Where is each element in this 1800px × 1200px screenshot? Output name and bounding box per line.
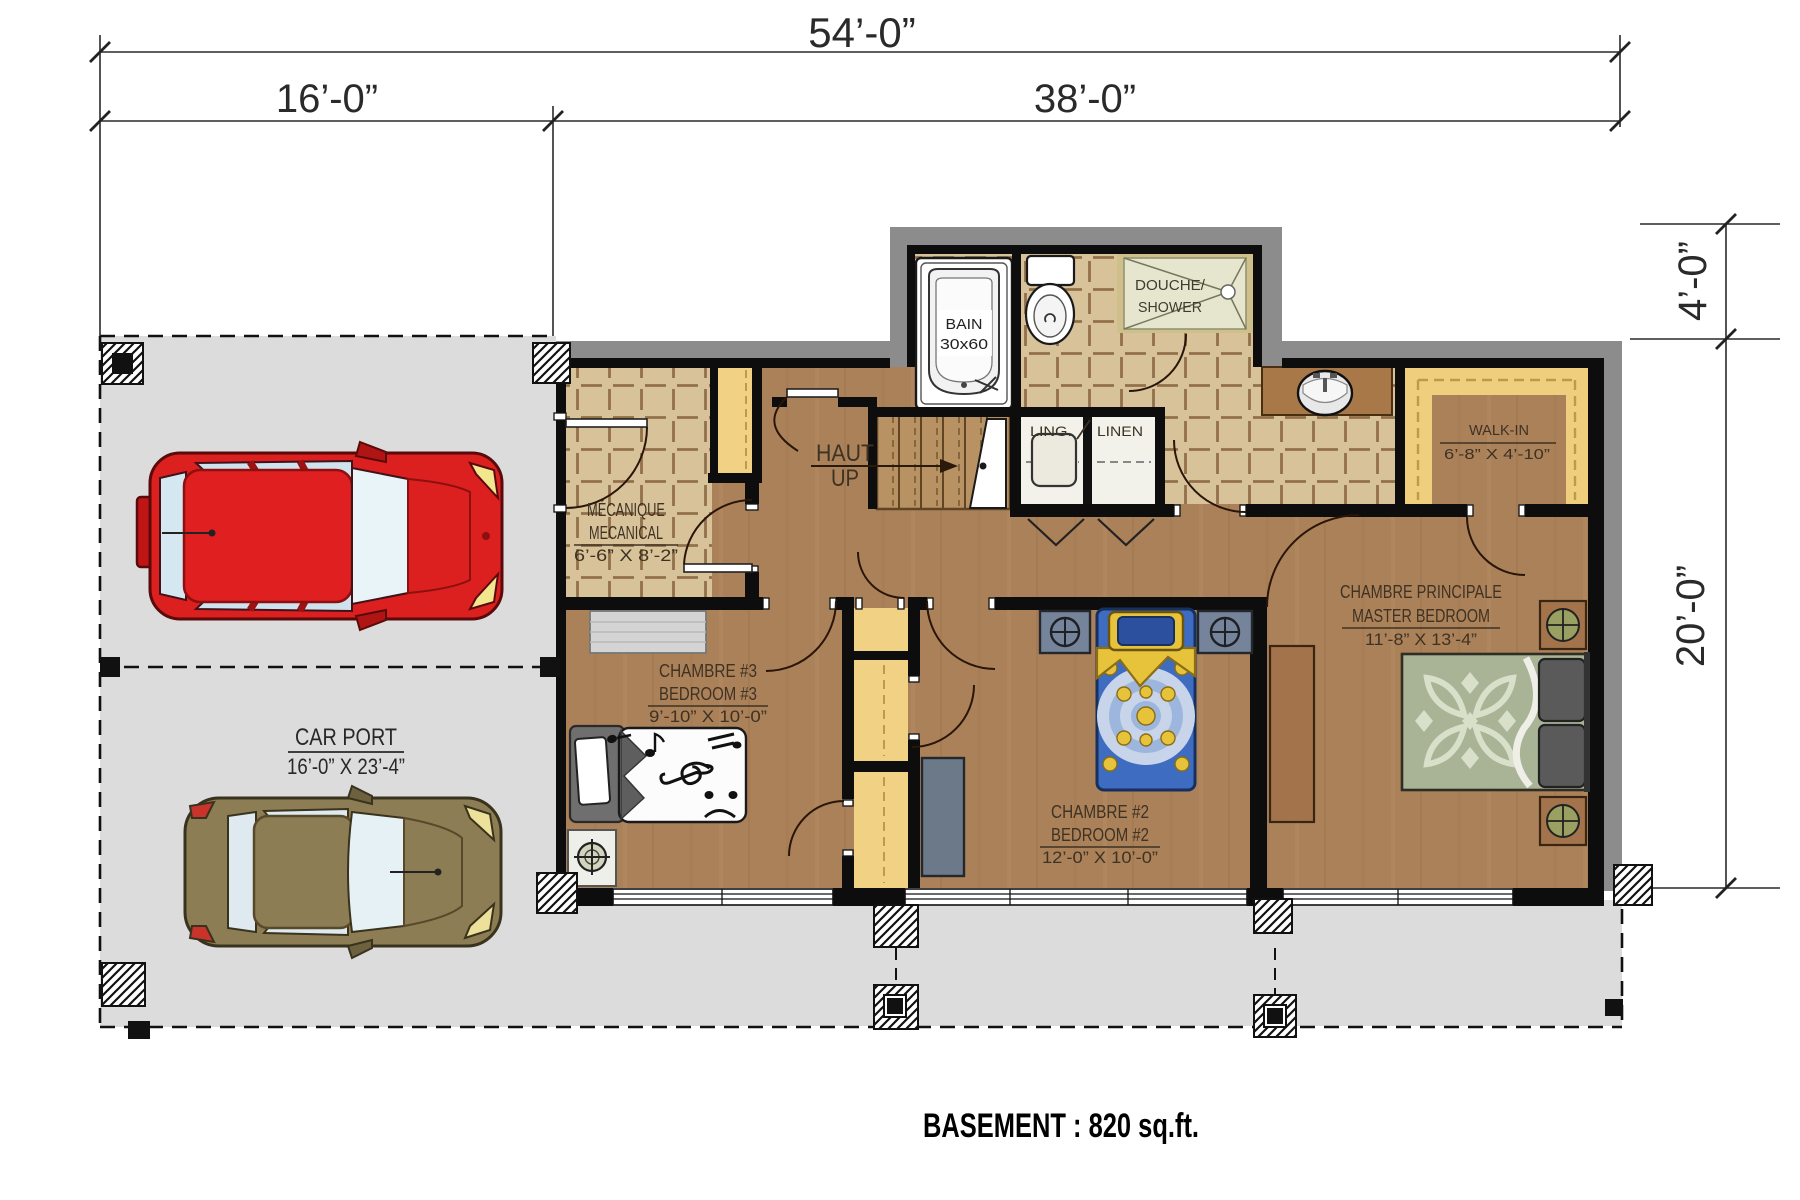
svg-text:BEDROOM #3: BEDROOM #3 — [659, 684, 757, 704]
svg-text:6’-8” X 4’-10”: 6’-8” X 4’-10” — [1444, 446, 1550, 463]
svg-text:MÉCANIQUE: MÉCANIQUE — [587, 500, 665, 520]
svg-text:CHAMBRE PRINCIPALE: CHAMBRE PRINCIPALE — [1340, 582, 1502, 602]
svg-text:BEDROOM #2: BEDROOM #2 — [1051, 825, 1149, 845]
svg-text:DOUCHE/: DOUCHE/ — [1135, 277, 1206, 294]
svg-text:54’-0”: 54’-0” — [808, 9, 915, 56]
svg-text:16’-0” X 23’-4”: 16’-0” X 23’-4” — [287, 754, 405, 779]
svg-text:LING.: LING. — [1030, 423, 1072, 439]
svg-text:16’-0”: 16’-0” — [276, 77, 378, 121]
svg-text:WALK-IN: WALK-IN — [1469, 422, 1529, 439]
svg-text:20’-0”: 20’-0” — [1669, 565, 1713, 667]
svg-text:HAUT: HAUT — [816, 440, 874, 467]
svg-text:30x60: 30x60 — [940, 336, 988, 353]
svg-text:6’-6” X 8’-2”: 6’-6” X 8’-2” — [574, 546, 678, 565]
svg-text:UP: UP — [831, 465, 859, 492]
svg-text:9’-10” X 10’-0”: 9’-10” X 10’-0” — [649, 707, 767, 726]
svg-text:CHAMBRE #3: CHAMBRE #3 — [659, 661, 757, 681]
svg-text:MASTER BEDROOM: MASTER BEDROOM — [1352, 606, 1490, 626]
svg-text:4’-0”: 4’-0” — [1671, 241, 1715, 321]
svg-text:LINEN: LINEN — [1097, 423, 1143, 439]
svg-text:CAR PORT: CAR PORT — [295, 724, 397, 751]
svg-text:12’-0” X 10’-0”: 12’-0” X 10’-0” — [1042, 848, 1158, 867]
svg-text:38’-0”: 38’-0” — [1034, 77, 1136, 121]
svg-text:SHOWER: SHOWER — [1138, 299, 1202, 316]
svg-text:11’-8” X 13’-4”: 11’-8” X 13’-4” — [1365, 630, 1477, 649]
svg-text:BAIN: BAIN — [946, 316, 983, 333]
svg-text:CHAMBRE #2: CHAMBRE #2 — [1051, 802, 1149, 822]
svg-text:MECANICAL: MECANICAL — [589, 523, 663, 543]
svg-text:BASEMENT : 820 sq.ft.: BASEMENT : 820 sq.ft. — [923, 1107, 1199, 1145]
